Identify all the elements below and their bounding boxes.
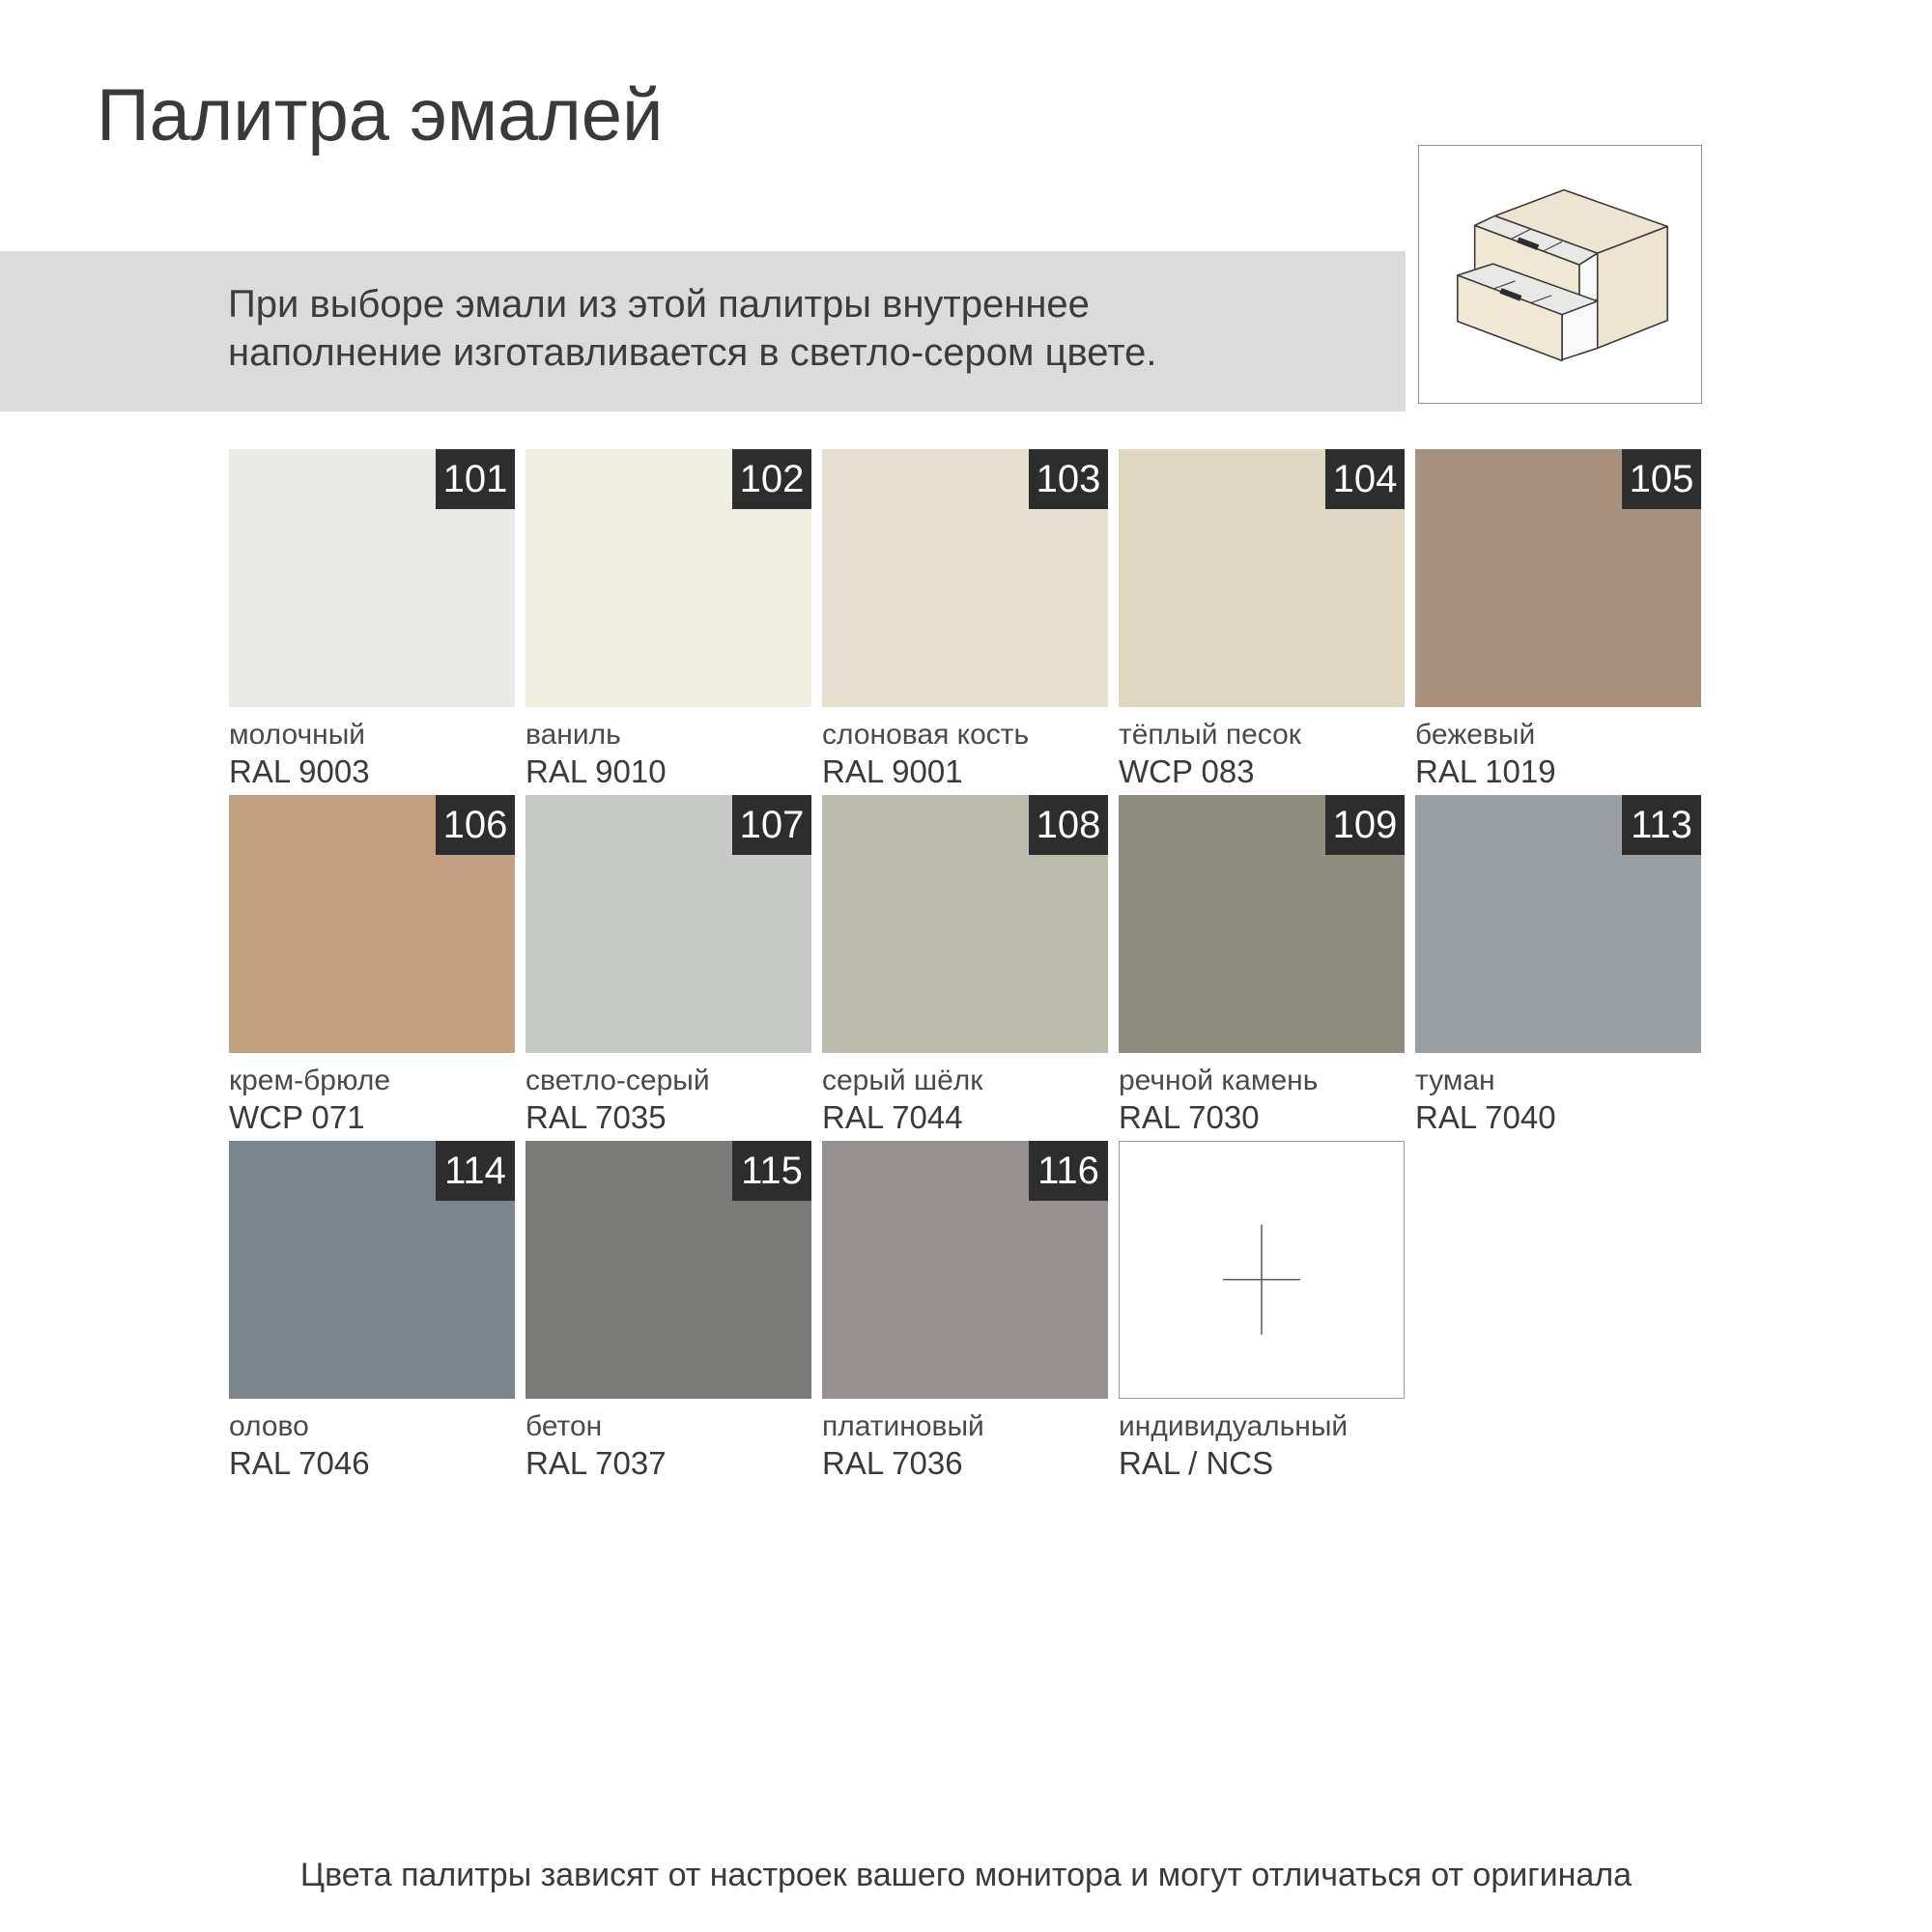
swatch-103[interactable]: 103 слоновая кость RAL 9001 (822, 449, 1108, 772)
swatch-number-badge: 113 (1622, 795, 1701, 855)
swatch-name: тёплый песок (1119, 717, 1405, 753)
swatch-number-badge: 114 (436, 1141, 515, 1201)
swatch-number-badge: 101 (436, 449, 515, 509)
swatch-name: ваниль (526, 717, 811, 753)
swatch-name: молочный (229, 717, 515, 753)
swatch-114[interactable]: 114 олово RAL 7046 (229, 1141, 515, 1463)
swatch-code: RAL 7040 (1415, 1098, 1701, 1137)
swatch-color[interactable]: 101 (229, 449, 515, 707)
page-root: { "page": { "title": "Палитра эмалей", "… (0, 0, 1932, 1932)
swatch-number-badge: 115 (732, 1141, 811, 1201)
swatch-color[interactable]: 108 (822, 795, 1108, 1053)
swatch-115[interactable]: 115 бетон RAL 7037 (526, 1141, 811, 1463)
swatch-color[interactable]: 113 (1415, 795, 1701, 1053)
swatch-105[interactable]: 105 бежевый RAL 1019 (1415, 449, 1701, 772)
swatch-color[interactable]: 115 (526, 1141, 811, 1399)
swatch-color[interactable]: 105 (1415, 449, 1701, 707)
swatch-number-badge: 116 (1029, 1141, 1108, 1201)
swatch-code: RAL 7035 (526, 1098, 811, 1137)
swatch-code: RAL 7037 (526, 1444, 811, 1483)
swatch-color[interactable]: 107 (526, 795, 811, 1053)
swatch-code: WCP 071 (229, 1098, 515, 1137)
swatch-color[interactable]: 114 (229, 1141, 515, 1399)
swatch-116[interactable]: 116 платиновый RAL 7036 (822, 1141, 1108, 1463)
custom-cross-icon (1184, 1202, 1339, 1356)
footer-note: Цвета палитры зависят от настроек вашего… (0, 1857, 1932, 1894)
swatch-name: крем-брюле (229, 1063, 515, 1098)
swatch-color[interactable] (1119, 1141, 1405, 1399)
swatch-code: RAL 7046 (229, 1444, 515, 1483)
note-text: При выборе эмали из этой палитры внутрен… (228, 280, 1156, 377)
swatch-color[interactable]: 102 (526, 449, 811, 707)
swatch-name: бетон (526, 1408, 811, 1444)
swatch-113[interactable]: 113 туман RAL 7040 (1415, 795, 1701, 1118)
swatch-109[interactable]: 109 речной камень RAL 7030 (1119, 795, 1405, 1118)
swatch-name: туман (1415, 1063, 1701, 1098)
swatch-number-badge: 105 (1622, 449, 1701, 509)
swatch-name: индивидуальный (1119, 1408, 1405, 1444)
swatch-grid: 101 молочный RAL 9003 102 ваниль RAL 901… (229, 449, 1701, 1463)
swatch-106[interactable]: 106 крем-брюле WCP 071 (229, 795, 515, 1118)
swatch-code: RAL 7044 (822, 1098, 1108, 1137)
swatch-name: бежевый (1415, 717, 1701, 753)
illustration-box (1418, 145, 1702, 404)
swatch-code: RAL 7036 (822, 1444, 1108, 1483)
note-line-1: При выборе эмали из этой палитры внутрен… (228, 283, 1090, 326)
page-title: Палитра эмалей (97, 77, 664, 155)
swatch-code: RAL 7030 (1119, 1098, 1405, 1137)
swatch-102[interactable]: 102 ваниль RAL 9010 (526, 449, 811, 772)
swatch-name: олово (229, 1408, 515, 1444)
swatch-number-badge: 108 (1029, 795, 1108, 855)
swatch-name: светло-серый (526, 1063, 811, 1098)
swatch-code: RAL 9010 (526, 753, 811, 791)
swatch-name: слоновая кость (822, 717, 1108, 753)
note-banner: При выборе эмали из этой палитры внутрен… (0, 251, 1406, 412)
swatch-number-badge: 107 (732, 795, 811, 855)
swatch-number-badge: 106 (436, 795, 515, 855)
swatch-color[interactable]: 106 (229, 795, 515, 1053)
swatch-107[interactable]: 107 светло-серый RAL 7035 (526, 795, 811, 1118)
swatch-number-badge: 102 (732, 449, 811, 509)
swatch-name: речной камень (1119, 1063, 1405, 1098)
swatch-name: платиновый (822, 1408, 1108, 1444)
swatch-name: серый шёлк (822, 1063, 1108, 1098)
swatch-color[interactable]: 103 (822, 449, 1108, 707)
swatch-number-badge: 103 (1029, 449, 1108, 509)
swatch-custom[interactable]: индивидуальный RAL / NCS (1119, 1141, 1405, 1463)
swatch-code: RAL 1019 (1415, 753, 1701, 791)
note-line-2: наполнение изготавливается в светло-серо… (228, 331, 1156, 374)
swatch-code: RAL 9003 (229, 753, 515, 791)
swatch-104[interactable]: 104 тёплый песок WCP 083 (1119, 449, 1405, 772)
swatch-number-badge: 104 (1325, 449, 1405, 509)
swatch-number-badge: 109 (1325, 795, 1405, 855)
drawer-cabinet-icon (1419, 146, 1701, 403)
swatch-color[interactable]: 104 (1119, 449, 1405, 707)
swatch-108[interactable]: 108 серый шёлк RAL 7044 (822, 795, 1108, 1118)
swatch-code: WCP 083 (1119, 753, 1405, 791)
swatch-color[interactable]: 109 (1119, 795, 1405, 1053)
swatch-color[interactable]: 116 (822, 1141, 1108, 1399)
swatch-code: RAL 9001 (822, 753, 1108, 791)
swatch-101[interactable]: 101 молочный RAL 9003 (229, 449, 515, 772)
swatch-code: RAL / NCS (1119, 1444, 1405, 1483)
